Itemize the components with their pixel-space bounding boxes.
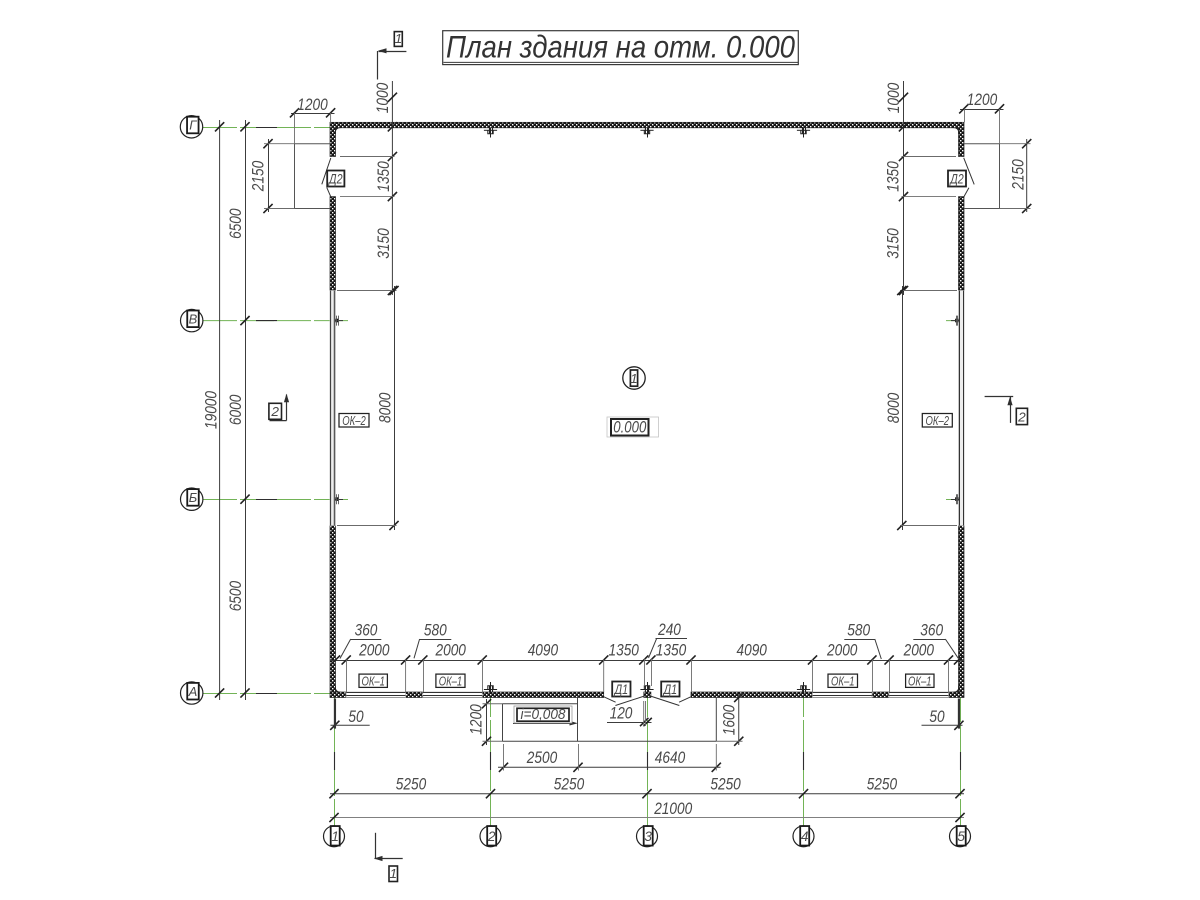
svg-text:2000: 2000: [903, 641, 935, 660]
svg-text:6500: 6500: [226, 208, 245, 239]
svg-text:ОК–2: ОК–2: [926, 413, 950, 428]
svg-text:8000: 8000: [884, 392, 903, 423]
svg-text:4: 4: [801, 828, 809, 844]
svg-text:Д1: Д1: [613, 682, 628, 697]
svg-text:ОК–1: ОК–1: [439, 673, 463, 688]
svg-text:360: 360: [920, 621, 943, 640]
svg-text:2: 2: [487, 828, 496, 844]
svg-text:1200: 1200: [297, 95, 328, 114]
svg-text:3150: 3150: [374, 228, 393, 259]
svg-text:2000: 2000: [435, 641, 467, 660]
svg-text:5250: 5250: [867, 774, 898, 793]
svg-text:3: 3: [644, 828, 652, 844]
svg-text:4090: 4090: [528, 641, 559, 660]
svg-text:4640: 4640: [655, 748, 686, 767]
svg-text:1: 1: [395, 32, 403, 46]
svg-text:4090: 4090: [737, 641, 768, 660]
svg-text:Д1: Д1: [662, 682, 677, 697]
svg-text:1350: 1350: [884, 161, 903, 192]
svg-text:2: 2: [270, 405, 279, 419]
svg-text:240: 240: [657, 620, 681, 639]
svg-text:1: 1: [331, 828, 339, 844]
svg-text:50: 50: [929, 707, 945, 726]
svg-text:2150: 2150: [249, 160, 268, 192]
svg-text:1: 1: [390, 867, 398, 881]
svg-text:В: В: [189, 311, 198, 326]
svg-text:360: 360: [355, 621, 378, 640]
svg-text:1200: 1200: [467, 704, 486, 735]
svg-text:ОК–1: ОК–1: [361, 673, 385, 688]
svg-text:2000: 2000: [826, 641, 858, 660]
svg-text:i=0,008: i=0,008: [521, 707, 566, 723]
svg-text:2000: 2000: [358, 641, 390, 660]
svg-text:8000: 8000: [376, 392, 395, 423]
svg-text:120: 120: [610, 704, 633, 723]
svg-text:План здания на отм. 0.000: План здания на отм. 0.000: [446, 29, 795, 65]
svg-text:5250: 5250: [554, 774, 585, 793]
svg-text:1000: 1000: [884, 82, 903, 113]
svg-text:1600: 1600: [720, 704, 739, 735]
svg-text:ОК–2: ОК–2: [342, 413, 366, 428]
svg-text:21000: 21000: [653, 799, 692, 818]
svg-text:Г: Г: [189, 118, 197, 133]
svg-text:2500: 2500: [526, 748, 558, 767]
svg-text:1350: 1350: [656, 641, 687, 660]
svg-text:1200: 1200: [967, 90, 998, 109]
svg-text:6500: 6500: [226, 580, 245, 611]
svg-text:ОК–1: ОК–1: [831, 673, 855, 688]
svg-text:1350: 1350: [374, 161, 393, 192]
svg-text:5250: 5250: [396, 774, 427, 793]
svg-text:Б: Б: [189, 490, 198, 505]
svg-text:0.000: 0.000: [613, 418, 646, 437]
svg-text:2: 2: [1017, 410, 1026, 424]
svg-text:5: 5: [957, 828, 965, 844]
svg-text:580: 580: [847, 621, 870, 640]
svg-text:6000: 6000: [226, 394, 245, 425]
svg-text:А: А: [188, 684, 198, 699]
svg-text:5250: 5250: [710, 774, 741, 793]
svg-text:ОК–1: ОК–1: [908, 673, 932, 688]
svg-text:1000: 1000: [373, 82, 392, 113]
svg-text:19000: 19000: [202, 391, 221, 429]
svg-text:50: 50: [348, 707, 364, 726]
svg-text:1: 1: [630, 371, 638, 386]
svg-text:580: 580: [424, 621, 447, 640]
svg-text:Д2: Д2: [327, 171, 342, 186]
svg-text:1350: 1350: [609, 641, 640, 660]
svg-text:2150: 2150: [1008, 159, 1027, 191]
svg-text:Д2: Д2: [949, 171, 964, 186]
svg-text:3150: 3150: [884, 228, 903, 259]
